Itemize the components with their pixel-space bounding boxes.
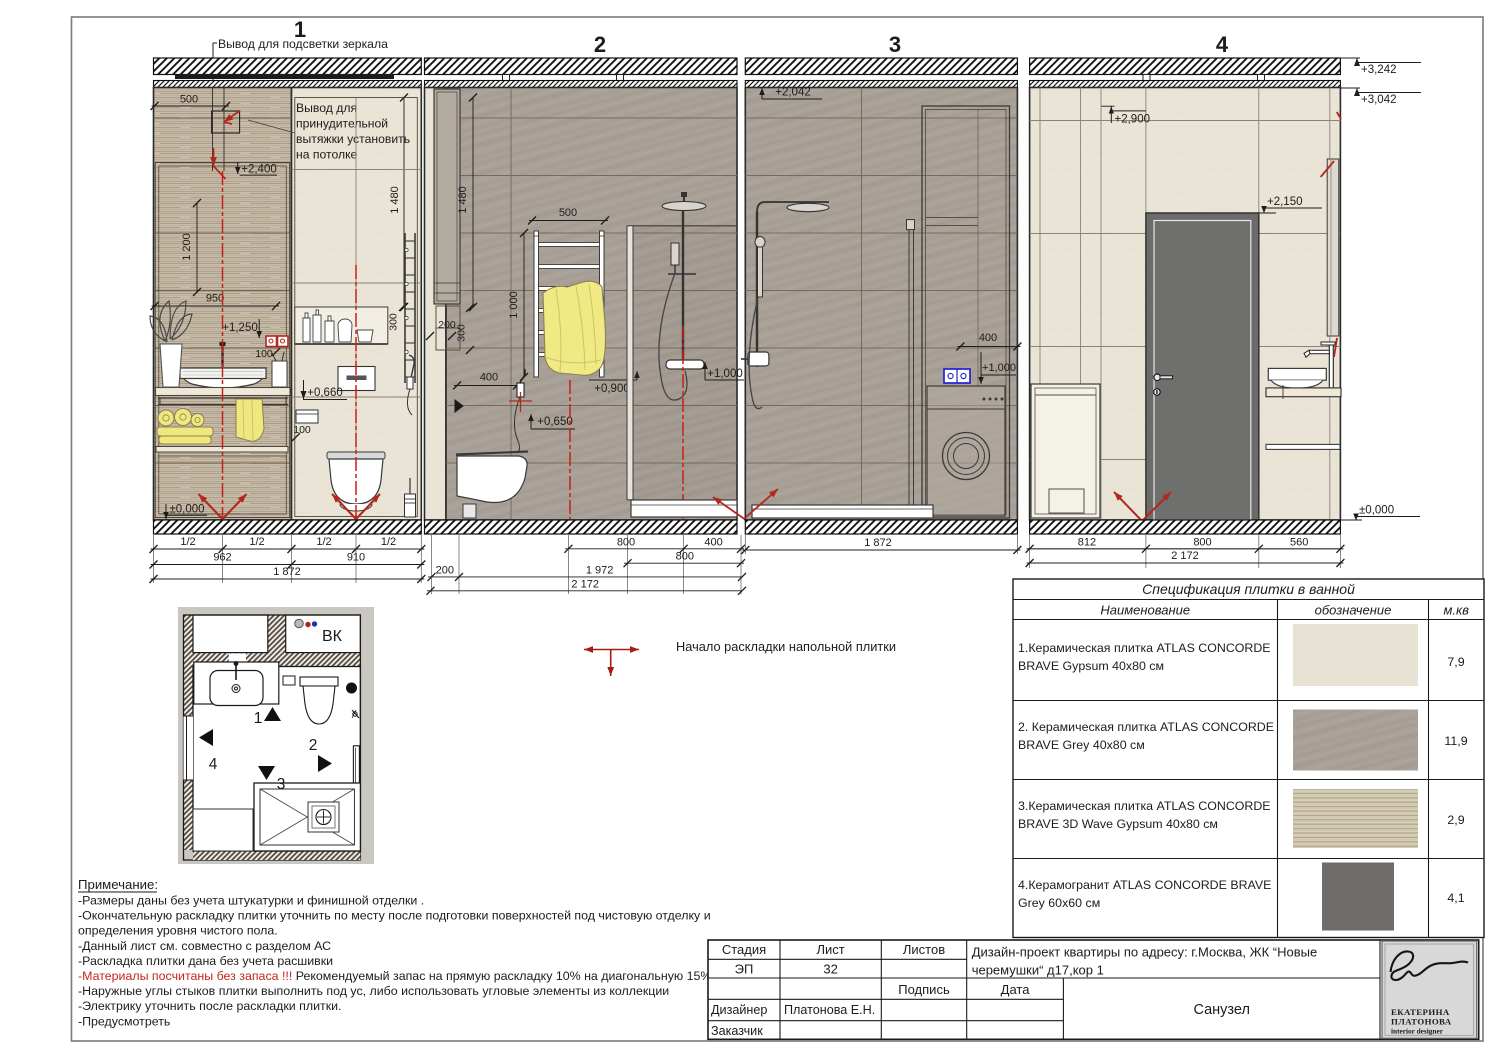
svg-text:Стадия: Стадия	[722, 942, 766, 957]
svg-text:±0,000: ±0,000	[1359, 505, 1394, 517]
svg-text:200: 200	[438, 319, 456, 331]
svg-text:ПЛАТОНОВА: ПЛАТОНОВА	[1391, 1017, 1452, 1027]
svg-text:+0,660: +0,660	[307, 387, 343, 399]
svg-text:100: 100	[255, 348, 273, 360]
svg-text:2. Керамическая плитка ATLAS C: 2. Керамическая плитка ATLAS CONCORDE	[1018, 720, 1274, 734]
svg-text:1 872: 1 872	[273, 566, 301, 578]
svg-text:Grey 60x60 см: Grey 60x60 см	[1018, 896, 1100, 910]
svg-text:812: 812	[1078, 536, 1096, 548]
svg-text:Дата: Дата	[1001, 982, 1031, 997]
svg-text:-Данный лист см. совместно с р: -Данный лист см. совместно с разделом АС	[78, 939, 331, 953]
svg-text:962: 962	[213, 552, 231, 564]
svg-text:-Размеры даны без учета штукат: -Размеры даны без учета штукатурки и фин…	[78, 894, 424, 908]
svg-text:+2,042: +2,042	[775, 87, 811, 99]
svg-text:Вывод для: Вывод для	[296, 101, 357, 115]
svg-text:+2,900: +2,900	[1115, 114, 1151, 126]
svg-text:1: 1	[254, 710, 263, 727]
svg-text:BRAVE Grey 40x80 см: BRAVE Grey 40x80 см	[1018, 738, 1145, 752]
svg-text:м.кв: м.кв	[1444, 603, 1470, 618]
svg-text:800: 800	[676, 551, 694, 563]
svg-text:2 172: 2 172	[1171, 550, 1199, 562]
svg-text:400: 400	[704, 537, 722, 549]
svg-text:Дизайн-проект квартиры по адре: Дизайн-проект квартиры по адресу: г.Моск…	[972, 945, 1318, 960]
svg-text:+0,900: +0,900	[594, 383, 630, 395]
svg-text:ВК: ВК	[322, 628, 343, 645]
svg-text:+1,250: +1,250	[222, 322, 258, 334]
svg-text:1/2: 1/2	[249, 536, 264, 548]
svg-text:Санузел: Санузел	[1193, 1002, 1250, 1018]
svg-text:4.Керамогранит ATLAS CONCORDE: 4.Керамогранит ATLAS CONCORDE BRAVE	[1018, 878, 1271, 892]
svg-text:Листов: Листов	[903, 942, 945, 957]
svg-text:вытяжки установить: вытяжки установить	[296, 132, 410, 146]
svg-text:-Окончательную раскладку плитк: -Окончательную раскладку плитки уточнить…	[78, 909, 711, 923]
svg-text:Спецификация плитки в ванной: Спецификация плитки в ванной	[1142, 581, 1355, 597]
svg-text:+2,150: +2,150	[1267, 196, 1303, 208]
svg-text:определения уровня чистого пол: определения уровня чистого пола.	[78, 924, 278, 938]
svg-text:Подпись: Подпись	[898, 982, 950, 997]
svg-text:200: 200	[436, 565, 454, 577]
svg-text:Примечание:: Примечание:	[78, 877, 158, 892]
svg-text:4,1: 4,1	[1447, 891, 1464, 905]
svg-text:3: 3	[277, 776, 286, 793]
svg-text:500: 500	[559, 207, 577, 219]
svg-text:2: 2	[594, 32, 606, 57]
svg-text:Наименование: Наименование	[1100, 603, 1190, 618]
svg-text:BRAVE Gypsum 40x80 см: BRAVE Gypsum 40x80 см	[1018, 659, 1164, 673]
svg-text:400: 400	[480, 372, 498, 384]
svg-text:Лист: Лист	[817, 942, 845, 957]
svg-text:560: 560	[1290, 536, 1308, 548]
svg-text:1.Керамическая плитка ATLAS C: 1.Керамическая плитка ATLAS CONCORDE	[1018, 641, 1271, 655]
svg-text:Начало раскладки напольной пли: Начало раскладки напольной плитки	[676, 639, 896, 654]
svg-text:1 480: 1 480	[457, 186, 469, 214]
svg-text:Заказчик: Заказчик	[711, 1024, 763, 1038]
svg-text:950: 950	[206, 293, 224, 305]
svg-text:+3,242: +3,242	[1361, 64, 1397, 76]
svg-text:300: 300	[388, 313, 400, 331]
svg-text:400: 400	[979, 332, 997, 344]
svg-text:-Наружные углы стыков плитки в: -Наружные углы стыков плитки выполнить п…	[78, 984, 669, 998]
svg-text:1/2: 1/2	[381, 536, 396, 548]
svg-text:на потолке: на потолке	[296, 148, 358, 162]
svg-text:2 172: 2 172	[571, 579, 599, 591]
svg-text:500: 500	[180, 94, 198, 106]
svg-text:1 972: 1 972	[586, 565, 614, 577]
svg-text:3.Керамическая плитка ATLAS CO: 3.Керамическая плитка ATLAS CONCORDE	[1018, 799, 1271, 813]
svg-text:1/2: 1/2	[180, 536, 195, 548]
svg-text:100: 100	[293, 424, 311, 436]
svg-text:+3,042: +3,042	[1361, 94, 1397, 106]
svg-text:800: 800	[1193, 536, 1211, 548]
svg-text:Платонова Е.Н.: Платонова Е.Н.	[784, 1003, 875, 1017]
svg-text:4: 4	[209, 756, 218, 773]
svg-text:4: 4	[1216, 32, 1229, 57]
svg-text:принудительной: принудительной	[296, 117, 388, 131]
svg-text:Дизайнер: Дизайнер	[711, 1003, 767, 1017]
svg-text:+1,000: +1,000	[707, 368, 743, 380]
svg-text:BRAVE 3D Wave Gypsum 40x80 см: BRAVE 3D Wave Gypsum 40x80 см	[1018, 817, 1218, 831]
svg-text:11,9: 11,9	[1444, 734, 1467, 748]
svg-text:-Раскладка плитки дана без уче: -Раскладка плитки дана без учета расшивк…	[78, 954, 333, 968]
svg-text:910: 910	[347, 552, 365, 564]
svg-text:Вывод для подсветки зеркала: Вывод для подсветки зеркала	[218, 37, 388, 51]
svg-text:+1,000: +1,000	[982, 362, 1016, 374]
svg-text:черемушки“ д17,кор 1: черемушки“ д17,кор 1	[972, 963, 1104, 978]
svg-text:2,9: 2,9	[1447, 813, 1464, 827]
svg-text:7,9: 7,9	[1447, 655, 1464, 669]
svg-text:1 480: 1 480	[389, 186, 401, 214]
svg-text:ЕКАТЕРИНА: ЕКАТЕРИНА	[1391, 1007, 1450, 1017]
svg-text:-Предусмотреть: -Предусмотреть	[78, 1014, 170, 1028]
svg-text:обозначение: обозначение	[1315, 603, 1392, 618]
svg-text:2: 2	[309, 737, 318, 754]
svg-text:3: 3	[889, 32, 901, 57]
svg-text:+0,650: +0,650	[537, 416, 573, 428]
svg-text:interior designer: interior designer	[1391, 1027, 1444, 1036]
svg-text:-Электрику уточнить после раск: -Электрику уточнить после раскладки плит…	[78, 999, 341, 1013]
svg-text:1 200: 1 200	[181, 233, 193, 261]
svg-text:1 872: 1 872	[864, 537, 892, 549]
svg-text:+2,400: +2,400	[241, 163, 277, 175]
svg-text:300: 300	[456, 324, 468, 342]
svg-text:ЭП: ЭП	[735, 962, 754, 977]
svg-text:1 000: 1 000	[508, 291, 520, 319]
svg-text:800: 800	[617, 537, 635, 549]
svg-text:1/2: 1/2	[316, 536, 331, 548]
svg-text:-Материалы посчитаны без запас: -Материалы посчитаны без запаса !!! Реко…	[78, 969, 711, 983]
svg-text:32: 32	[823, 962, 837, 977]
svg-text:±0,000: ±0,000	[169, 504, 204, 516]
